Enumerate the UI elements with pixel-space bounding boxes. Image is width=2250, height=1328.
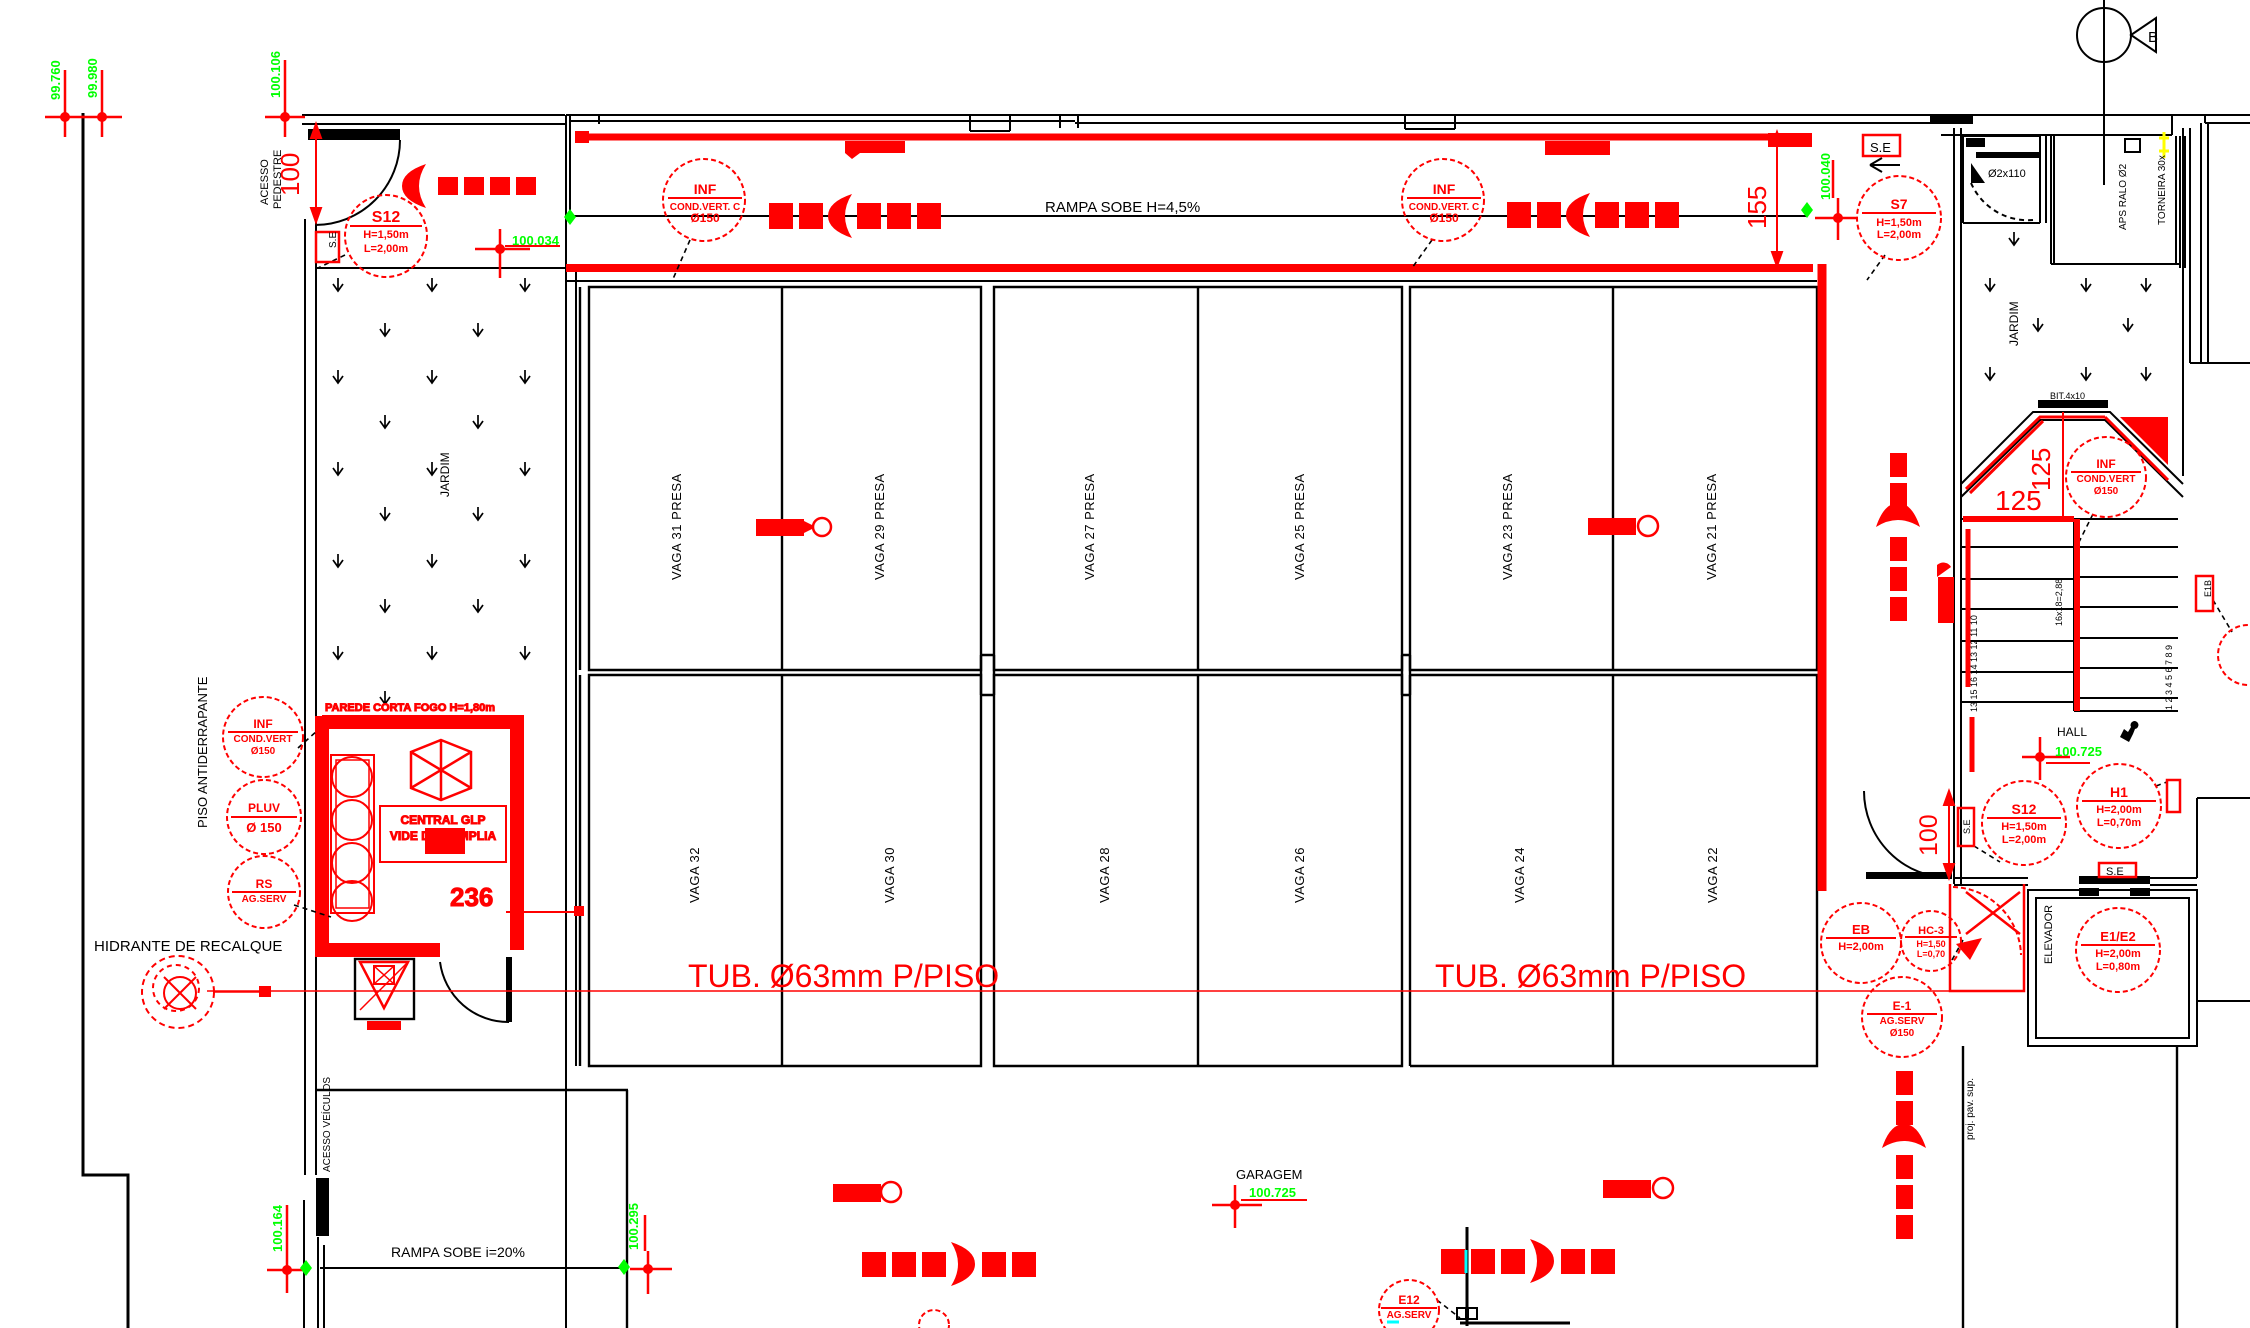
- svg-text:AG.SERV: AG.SERV: [242, 894, 287, 905]
- svg-text:VAGA 31 PRESA: VAGA 31 PRESA: [669, 473, 684, 580]
- svg-text:H=1,50m: H=1,50m: [1876, 217, 1922, 229]
- svg-text:Ø150: Ø150: [2094, 486, 2119, 497]
- svg-text:VAGA 24: VAGA 24: [1512, 847, 1527, 903]
- svg-text:proj. pav. sup.: proj. pav. sup.: [1965, 1078, 1976, 1140]
- svg-text:INF: INF: [253, 717, 272, 731]
- svg-text:VAGA 27 PRESA: VAGA 27 PRESA: [1082, 473, 1097, 580]
- svg-text:PEDESTRE: PEDESTRE: [272, 150, 284, 209]
- svg-text:L=0,80m: L=0,80m: [2096, 961, 2141, 973]
- svg-text:APS RALO Ø2: APS RALO Ø2: [2118, 163, 2129, 230]
- svg-text:PLUV: PLUV: [248, 801, 280, 815]
- svg-text:HIDRANTE DE RECALQUE: HIDRANTE DE RECALQUE: [94, 938, 282, 955]
- svg-text:B: B: [2148, 29, 2158, 46]
- svg-text:S.E: S.E: [328, 232, 339, 248]
- svg-text:E12: E12: [1398, 1293, 1420, 1307]
- svg-text:S12: S12: [372, 209, 401, 226]
- svg-text:H=1,50m: H=1,50m: [2001, 821, 2047, 833]
- svg-text:S.E: S.E: [2106, 866, 2124, 878]
- svg-text:L=0,70: L=0,70: [1917, 949, 1945, 959]
- svg-text:H=1,50m: H=1,50m: [363, 229, 409, 241]
- svg-text:L=2,00m: L=2,00m: [2002, 834, 2047, 846]
- svg-text:RAMPA SOBE i=20%: RAMPA SOBE i=20%: [391, 1244, 525, 1260]
- svg-text:1 2 3 4 5 6 7 8 9: 1 2 3 4 5 6 7 8 9: [2164, 645, 2174, 710]
- svg-text:COND.VERT: COND.VERT: [2077, 474, 2136, 485]
- svg-text:S.E: S.E: [1870, 140, 1891, 155]
- svg-text:E1/E2: E1/E2: [2100, 929, 2135, 944]
- svg-text:VAGA 23 PRESA: VAGA 23 PRESA: [1500, 473, 1515, 580]
- svg-text:125: 125: [2026, 448, 2056, 491]
- svg-text:CENTRAL GLP: CENTRAL GLP: [400, 813, 485, 827]
- svg-text:16x18=2,88: 16x18=2,88: [2054, 579, 2064, 626]
- svg-text:E-1: E-1: [1893, 999, 1912, 1013]
- svg-text:Ø150: Ø150: [690, 211, 720, 225]
- svg-text:H=2,00m: H=2,00m: [2096, 804, 2142, 816]
- svg-text:Ø150: Ø150: [1890, 1028, 1915, 1039]
- svg-text:155: 155: [1742, 186, 1772, 229]
- svg-text:L=2,00m: L=2,00m: [1877, 229, 1922, 241]
- svg-text:INF: INF: [694, 181, 717, 197]
- svg-text:H=1,50: H=1,50: [1916, 939, 1945, 949]
- svg-text:RAMPA SOBE H=4,5%: RAMPA SOBE H=4,5%: [1045, 199, 1200, 216]
- svg-text:Ø2x110: Ø2x110: [1988, 168, 2026, 180]
- svg-text:TORNEIRA 30x: TORNEIRA 30x: [2157, 155, 2168, 225]
- svg-text:100.034: 100.034: [512, 233, 560, 248]
- svg-text:AG.SERV: AG.SERV: [1387, 1310, 1432, 1321]
- svg-text:99.760: 99.760: [48, 60, 63, 100]
- svg-text:TUB. Ø63mm P/PISO: TUB. Ø63mm P/PISO: [1435, 958, 1746, 994]
- svg-text:INF: INF: [2096, 457, 2115, 471]
- svg-text:VAGA 25 PRESA: VAGA 25 PRESA: [1292, 473, 1307, 580]
- svg-text:GARAGEM: GARAGEM: [1236, 1167, 1302, 1182]
- svg-text:S.E: S.E: [1962, 819, 1972, 834]
- svg-text:BIT.4x10: BIT.4x10: [2050, 391, 2085, 401]
- svg-text:VAGA 21 PRESA: VAGA 21 PRESA: [1704, 473, 1719, 580]
- svg-text:Ø 150: Ø 150: [246, 820, 281, 835]
- svg-text:H=2,00m: H=2,00m: [1838, 941, 1884, 953]
- svg-text:236: 236: [450, 882, 493, 912]
- svg-text:100.164: 100.164: [270, 1204, 285, 1252]
- svg-text:COND.VERT: COND.VERT: [234, 734, 293, 745]
- svg-text:100.295: 100.295: [626, 1203, 641, 1250]
- svg-text:H1: H1: [2110, 784, 2128, 800]
- svg-text:EB: EB: [1852, 922, 1870, 937]
- svg-text:S12: S12: [2012, 801, 2037, 817]
- svg-text:TUB. Ø63mm P/PISO: TUB. Ø63mm P/PISO: [688, 958, 999, 994]
- svg-text:VAGA 29 PRESA: VAGA 29 PRESA: [872, 473, 887, 580]
- svg-text:JARDIM: JARDIM: [438, 452, 452, 497]
- svg-text:Ø150: Ø150: [1429, 211, 1459, 225]
- svg-text:100.106: 100.106: [268, 51, 283, 98]
- svg-text:S7: S7: [1890, 196, 1907, 212]
- svg-text:VAGA 30: VAGA 30: [882, 847, 897, 903]
- svg-text:13 15 16 14 13 12 11 10: 13 15 16 14 13 12 11 10: [1969, 615, 1979, 712]
- svg-text:HC-3: HC-3: [1918, 925, 1944, 937]
- svg-text:ELEVADOR: ELEVADOR: [2043, 905, 2055, 964]
- svg-text:100.725: 100.725: [2055, 744, 2102, 759]
- svg-text:L=2,00m: L=2,00m: [364, 243, 409, 255]
- svg-text:VAGA 32: VAGA 32: [687, 847, 702, 903]
- svg-text:VAGA 22: VAGA 22: [1705, 847, 1720, 903]
- svg-text:VAGA 28: VAGA 28: [1097, 847, 1112, 903]
- svg-text:HALL: HALL: [2057, 725, 2087, 739]
- svg-text:VAGA 26: VAGA 26: [1292, 847, 1307, 903]
- svg-text:99.980: 99.980: [85, 58, 100, 98]
- svg-text:AG.SERV: AG.SERV: [1880, 1016, 1925, 1027]
- svg-text:INF: INF: [1433, 181, 1456, 197]
- svg-text:E1B: E1B: [2203, 580, 2213, 597]
- svg-text:100.725: 100.725: [1249, 1185, 1296, 1200]
- svg-text:PISO ANTIDERRAPANTE: PISO ANTIDERRAPANTE: [195, 676, 210, 828]
- svg-text:Ø150: Ø150: [251, 746, 276, 757]
- svg-text:ACESSO: ACESSO: [259, 159, 271, 205]
- svg-text:L=0,70m: L=0,70m: [2097, 817, 2142, 829]
- svg-text:100: 100: [1915, 814, 1943, 856]
- svg-text:H=2,00m: H=2,00m: [2095, 948, 2141, 960]
- svg-text:RS: RS: [256, 877, 273, 891]
- svg-text:ACESSO VEÍCULOS: ACESSO VEÍCULOS: [320, 1077, 333, 1172]
- svg-text:PAREDE CORTA FOGO H=1,80m: PAREDE CORTA FOGO H=1,80m: [325, 702, 495, 714]
- svg-text:JARDIM: JARDIM: [2007, 301, 2021, 346]
- svg-text:100.040: 100.040: [1818, 153, 1833, 200]
